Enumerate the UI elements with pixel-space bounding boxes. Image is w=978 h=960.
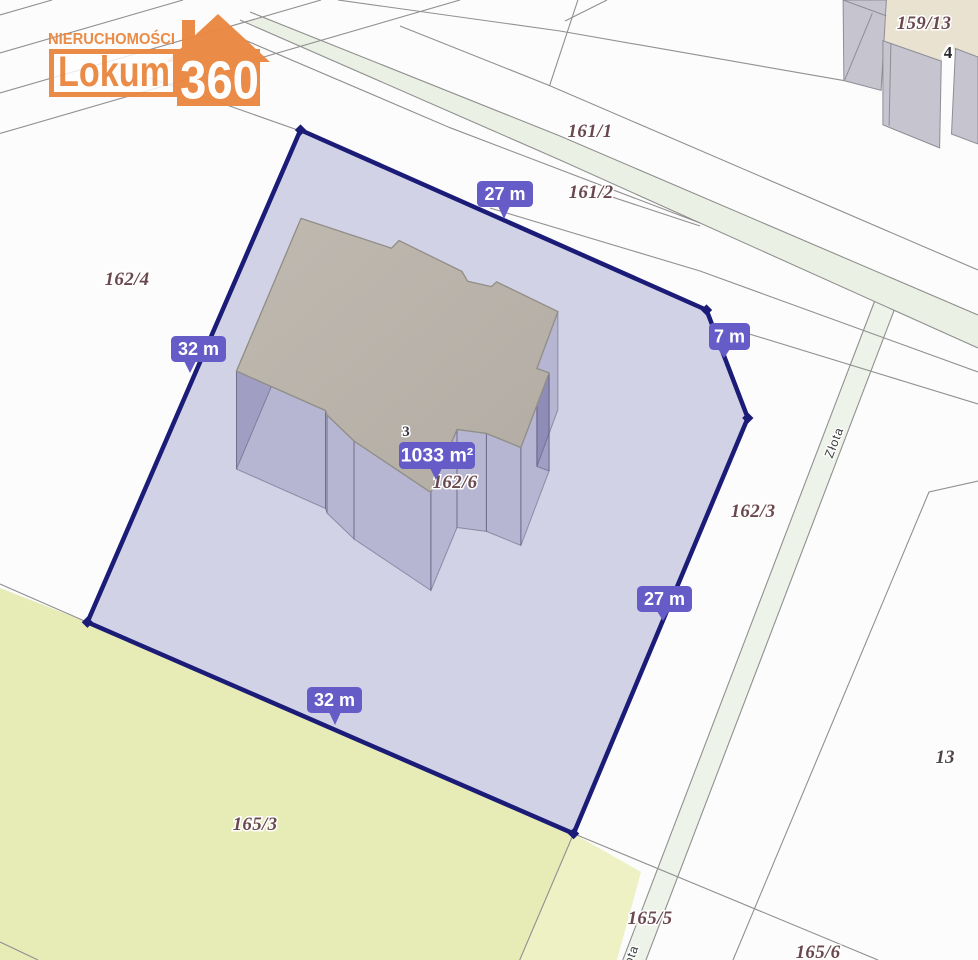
svg-text:159/13: 159/13 [897, 13, 952, 34]
svg-text:27 m: 27 m [484, 184, 525, 204]
svg-text:162/4: 162/4 [105, 269, 150, 290]
svg-text:161/2: 161/2 [569, 182, 614, 203]
svg-text:3: 3 [402, 424, 410, 440]
svg-text:165/3: 165/3 [233, 814, 278, 835]
svg-text:7 m: 7 m [714, 327, 745, 347]
svg-text:Lokum: Lokum [58, 48, 170, 96]
svg-text:360: 360 [180, 51, 259, 111]
svg-text:27 m: 27 m [644, 589, 685, 609]
svg-text:4: 4 [944, 43, 953, 62]
svg-text:162/3: 162/3 [731, 501, 776, 522]
svg-text:162/6: 162/6 [433, 472, 478, 493]
svg-text:NIERUCHOMOŚCI: NIERUCHOMOŚCI [48, 29, 175, 48]
svg-text:32 m: 32 m [178, 339, 219, 359]
svg-text:165/5: 165/5 [628, 908, 673, 929]
svg-text:13: 13 [936, 747, 955, 768]
svg-text:165/6: 165/6 [796, 942, 841, 960]
svg-text:1033 m²: 1033 m² [401, 445, 474, 467]
svg-text:161/1: 161/1 [568, 121, 613, 142]
svg-text:32 m: 32 m [314, 690, 355, 710]
